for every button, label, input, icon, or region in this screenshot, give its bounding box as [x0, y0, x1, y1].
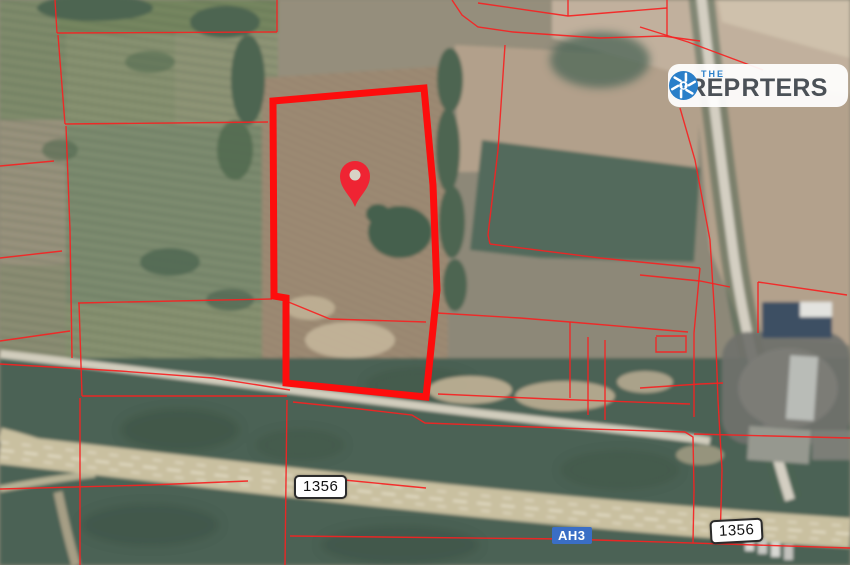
- route-shield-1356-left: 1356: [294, 475, 347, 499]
- highway-shield-ah3: AH3: [552, 527, 592, 544]
- logo-rters-text: RTERS: [742, 74, 828, 103]
- aperture-icon: [668, 70, 699, 101]
- the-reporters-watermark: THE REP RTERS: [668, 64, 848, 107]
- pin-hole: [350, 170, 361, 181]
- route-shield-1356-right: 1356: [709, 518, 764, 545]
- location-pin[interactable]: [340, 161, 370, 207]
- highlighted-parcel-outline: [273, 88, 437, 397]
- satellite-map: 1356 1356 AH3 THE REP RTERS: [0, 0, 850, 565]
- logo-the-text: THE: [701, 69, 725, 79]
- pin-body: [340, 161, 370, 207]
